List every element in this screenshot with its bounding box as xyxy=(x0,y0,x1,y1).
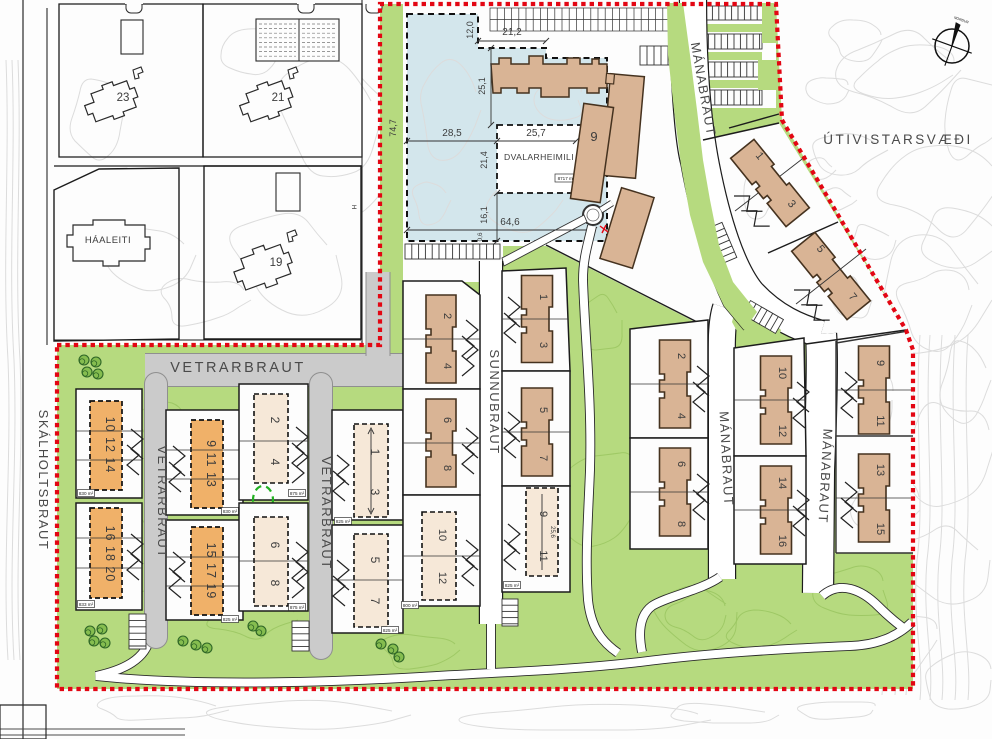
svg-text:6: 6 xyxy=(675,461,687,467)
svg-text:4: 4 xyxy=(268,459,282,466)
svg-text:9: 9 xyxy=(874,360,886,366)
svg-text:25,6: 25,6 xyxy=(549,526,555,538)
svg-text:16 18 20: 16 18 20 xyxy=(103,526,117,583)
svg-text:6: 6 xyxy=(441,417,453,423)
svg-text:12,0: 12,0 xyxy=(465,21,475,39)
svg-text:8: 8 xyxy=(268,580,282,587)
svg-text:VETRARBRAUT: VETRARBRAUT xyxy=(319,456,334,569)
svg-text:5: 5 xyxy=(537,407,549,413)
svg-text:800 m²: 800 m² xyxy=(403,603,418,608)
svg-text:1: 1 xyxy=(537,294,549,300)
svg-text:74,7: 74,7 xyxy=(388,119,398,137)
svg-text:VETRARBRAUT: VETRARBRAUT xyxy=(170,360,305,376)
svg-text:7: 7 xyxy=(537,455,549,461)
svg-text:825 m²: 825 m² xyxy=(505,583,520,588)
svg-text:833 m²: 833 m² xyxy=(79,602,94,607)
svg-text:ÚTIVISTARSVÆÐI: ÚTIVISTARSVÆÐI xyxy=(823,132,973,147)
svg-text:825 m²: 825 m² xyxy=(223,617,238,622)
svg-text:16,1: 16,1 xyxy=(479,206,489,224)
svg-text:13: 13 xyxy=(874,464,886,476)
svg-text:8: 8 xyxy=(441,465,453,471)
svg-text:H: H xyxy=(350,205,356,209)
svg-text:5: 5 xyxy=(368,557,382,564)
svg-text:830 m²: 830 m² xyxy=(223,509,238,514)
svg-text:875 m²: 875 m² xyxy=(290,491,305,496)
svg-text:25,1: 25,1 xyxy=(477,77,487,95)
svg-text:23: 23 xyxy=(117,92,130,104)
svg-text:1: 1 xyxy=(368,449,382,456)
svg-text:15: 15 xyxy=(874,523,886,535)
svg-text:12: 12 xyxy=(436,572,448,584)
svg-text:3: 3 xyxy=(537,342,549,348)
svg-text:15 17 19: 15 17 19 xyxy=(204,543,218,600)
svg-text:SUNNUBRAUT: SUNNUBRAUT xyxy=(487,349,502,454)
svg-text:9 11 13: 9 11 13 xyxy=(204,440,218,488)
svg-text:4: 4 xyxy=(675,413,687,419)
svg-text:2: 2 xyxy=(675,353,687,359)
svg-text:8: 8 xyxy=(675,521,687,527)
svg-text:9: 9 xyxy=(590,129,597,144)
svg-text:64,6: 64,6 xyxy=(500,217,520,228)
svg-text:16: 16 xyxy=(776,535,788,547)
svg-text:6: 6 xyxy=(268,542,282,549)
svg-text:28,5: 28,5 xyxy=(442,128,462,139)
svg-text:21: 21 xyxy=(272,92,285,104)
svg-text:VETRARBRAUT: VETRARBRAUT xyxy=(155,445,170,558)
svg-text:21,2: 21,2 xyxy=(502,27,522,38)
svg-text:0,6: 0,6 xyxy=(477,232,484,241)
svg-text:14: 14 xyxy=(776,477,788,489)
svg-text:10: 10 xyxy=(436,529,448,541)
svg-text:2: 2 xyxy=(441,313,453,319)
svg-text:21,4: 21,4 xyxy=(479,151,489,169)
svg-text:10 12 14: 10 12 14 xyxy=(103,417,117,474)
svg-text:875 m²: 875 m² xyxy=(290,605,305,610)
svg-text:19: 19 xyxy=(270,257,283,269)
svg-text:825 m²: 825 m² xyxy=(383,628,398,633)
svg-text:9: 9 xyxy=(537,511,549,517)
svg-text:3: 3 xyxy=(368,489,382,496)
svg-text:2: 2 xyxy=(268,417,282,424)
svg-text:11: 11 xyxy=(537,550,549,561)
svg-text:12: 12 xyxy=(776,425,788,437)
svg-text:11: 11 xyxy=(874,415,886,426)
svg-text:HÁALEITI: HÁALEITI xyxy=(85,235,131,246)
svg-text:25,7: 25,7 xyxy=(526,128,546,139)
svg-text:SKÁLHOLTSBRAUT: SKÁLHOLTSBRAUT xyxy=(36,410,51,551)
svg-text:DVALARHEIMILI: DVALARHEIMILI xyxy=(504,152,574,162)
svg-text:830 m²: 830 m² xyxy=(79,491,94,496)
svg-text:825 m²: 825 m² xyxy=(336,519,351,524)
svg-text:7: 7 xyxy=(368,598,382,605)
svg-text:4: 4 xyxy=(441,363,453,369)
svg-text:10: 10 xyxy=(776,367,788,379)
